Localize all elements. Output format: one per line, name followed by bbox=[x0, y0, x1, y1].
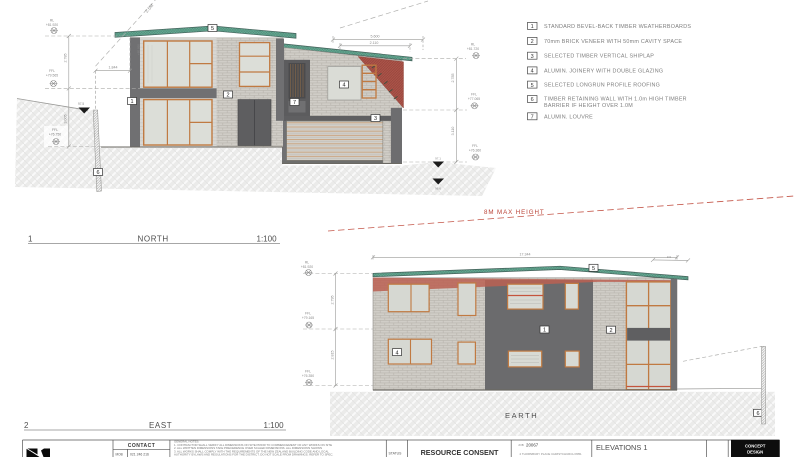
svg-text:5.600: 5.600 bbox=[371, 34, 380, 38]
svg-text:6: 6 bbox=[756, 411, 759, 417]
svg-text:021 246 216: 021 246 216 bbox=[130, 452, 149, 456]
svg-text:1:100: 1:100 bbox=[257, 235, 278, 244]
svg-text:97.1: 97.1 bbox=[435, 157, 441, 161]
svg-text:4: 4 bbox=[531, 69, 534, 75]
svg-text:3: 3 bbox=[531, 54, 534, 60]
svg-text:NORTH: NORTH bbox=[138, 235, 169, 244]
svg-text:+81.920: +81.920 bbox=[46, 23, 58, 27]
svg-text:2.815: 2.815 bbox=[330, 351, 334, 360]
svg-text:STATUS: STATUS bbox=[389, 452, 403, 456]
svg-text:1: 1 bbox=[543, 328, 546, 334]
svg-text:+77.065: +77.065 bbox=[468, 97, 480, 101]
svg-text:+81.720: +81.720 bbox=[467, 47, 479, 51]
svg-text:70mm BRICK VENEER WITH 50mm CA: 70mm BRICK VENEER WITH 50mm CAVITY SPACE bbox=[544, 39, 682, 45]
svg-text:RL: RL bbox=[305, 261, 309, 265]
svg-text:17.344: 17.344 bbox=[520, 253, 531, 257]
svg-text:7: 7 bbox=[293, 100, 296, 106]
svg-text:RESOURCE CONSENT: RESOURCE CONSENT bbox=[421, 448, 499, 457]
svg-text:AUTHORITY BYLAWS AND REGULATIO: AUTHORITY BYLAWS AND REGULATIONS FOR THE… bbox=[174, 453, 333, 457]
svg-text:RL: RL bbox=[50, 19, 54, 23]
svg-text:+81.920: +81.920 bbox=[301, 265, 313, 269]
svg-text:2: 2 bbox=[531, 39, 534, 45]
svg-text:1: 1 bbox=[531, 24, 534, 30]
svg-text:FFL: FFL bbox=[305, 312, 311, 316]
svg-text:2: 2 bbox=[24, 421, 29, 430]
svg-text:2 THORNBURY PLACE CHRISTCHURC: 2 THORNBURY PLACE CHRISTCHURCH 8051 bbox=[520, 452, 583, 456]
svg-text:2: 2 bbox=[609, 328, 612, 334]
svg-text:CONCEPT: CONCEPT bbox=[745, 444, 766, 449]
svg-text:97.5: 97.5 bbox=[78, 102, 84, 106]
svg-text:FFL: FFL bbox=[49, 69, 55, 73]
svg-text:EAST: EAST bbox=[149, 421, 172, 430]
svg-text:0.9: 0.9 bbox=[667, 255, 672, 259]
svg-text:20067: 20067 bbox=[526, 442, 539, 447]
svg-text:EARTH: EARTH bbox=[505, 411, 538, 420]
svg-text:2.795: 2.795 bbox=[330, 296, 334, 305]
svg-text:2.110: 2.110 bbox=[370, 41, 379, 45]
svg-text:4: 4 bbox=[395, 350, 398, 356]
svg-text:3.005: 3.005 bbox=[64, 115, 68, 124]
svg-text:ALUMIN. JOINERY WITH DOUBLE GL: ALUMIN. JOINERY WITH DOUBLE GLAZING bbox=[544, 68, 663, 74]
svg-text:8M MAX HEIGHT: 8M MAX HEIGHT bbox=[484, 209, 545, 216]
svg-text:1: 1 bbox=[130, 99, 133, 105]
svg-text:4: 4 bbox=[342, 83, 345, 89]
svg-text:FFL: FFL bbox=[305, 369, 311, 373]
svg-text:CONTACT: CONTACT bbox=[128, 443, 156, 449]
svg-text:2.785: 2.785 bbox=[64, 54, 68, 63]
svg-text:SELECTED LONGRUN PROFILE ROO: SELECTED LONGRUN PROFILE ROOFING bbox=[544, 83, 660, 89]
svg-text:3: 3 bbox=[374, 116, 377, 122]
svg-text:2.785: 2.785 bbox=[451, 74, 455, 83]
svg-text:STANDARD BEVEL-BACK TIMBER WEA: STANDARD BEVEL-BACK TIMBER WEATHERBOARDS bbox=[544, 24, 691, 30]
svg-text:+80.950: +80.950 bbox=[137, 44, 141, 55]
svg-text:BARRIER IF HEIGHT OVER 1.0M: BARRIER IF HEIGHT OVER 1.0M bbox=[544, 103, 633, 109]
svg-text:+79.565: +79.565 bbox=[46, 74, 58, 78]
svg-text:1.844: 1.844 bbox=[109, 66, 118, 70]
svg-text:SELECTED TIMBER VERTICAL SHIPL: SELECTED TIMBER VERTICAL SHIPLAP bbox=[544, 54, 654, 60]
svg-text:+79.165: +79.165 bbox=[302, 316, 314, 320]
svg-text:6: 6 bbox=[531, 97, 534, 103]
svg-text:FFL: FFL bbox=[472, 144, 478, 148]
svg-text:2: 2 bbox=[226, 93, 229, 99]
svg-text:DESIGN: DESIGN bbox=[747, 449, 763, 454]
svg-text:JOB: JOB bbox=[518, 443, 524, 447]
svg-text:1: 1 bbox=[28, 235, 33, 244]
svg-text:96.6: 96.6 bbox=[435, 187, 441, 191]
svg-text:MOB: MOB bbox=[116, 452, 123, 456]
svg-text:1:100: 1:100 bbox=[264, 421, 285, 430]
svg-text:RL: RL bbox=[471, 43, 475, 47]
svg-text:TIMBER RETAINING WALL WITH 1.0: TIMBER RETAINING WALL WITH 1.0m HIGH TIM… bbox=[544, 97, 687, 103]
svg-text:2.5M: 2.5M bbox=[144, 3, 155, 14]
svg-text:+76.750: +76.750 bbox=[49, 133, 61, 137]
svg-text:FFL: FFL bbox=[52, 128, 58, 132]
svg-text:ALUMIN. LOUVRE: ALUMIN. LOUVRE bbox=[544, 114, 593, 120]
svg-text:+76.360: +76.360 bbox=[469, 149, 481, 153]
svg-text:5: 5 bbox=[531, 83, 534, 89]
svg-text:5: 5 bbox=[211, 26, 214, 32]
svg-text:FFL: FFL bbox=[471, 93, 477, 97]
svg-text:5: 5 bbox=[592, 266, 595, 272]
svg-text:ELEVATIONS 1: ELEVATIONS 1 bbox=[596, 443, 647, 452]
svg-text:7: 7 bbox=[531, 115, 534, 121]
svg-text:3.110: 3.110 bbox=[451, 127, 455, 136]
svg-text:+76.350: +76.350 bbox=[302, 374, 314, 378]
svg-text:6: 6 bbox=[96, 170, 99, 176]
